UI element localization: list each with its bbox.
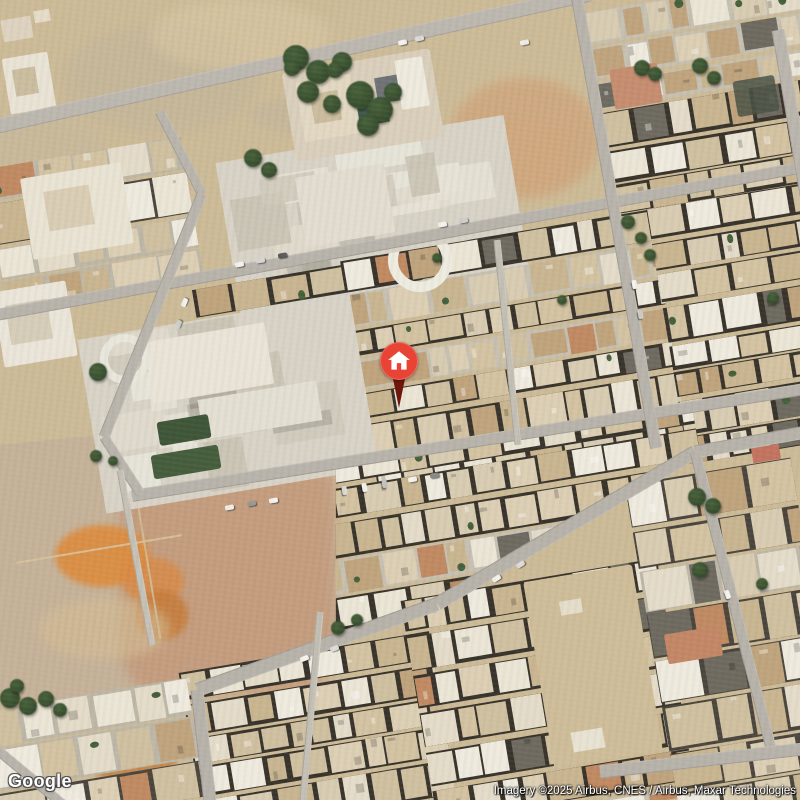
home-icon (386, 348, 412, 374)
google-logo[interactable]: Google (8, 771, 72, 792)
marker-head (380, 342, 418, 380)
map-viewport[interactable]: Google Imagery ©2025 Airbus, CNES / Airb… (0, 0, 800, 800)
map-attribution: Imagery ©2025 Airbus, CNES / Airbus, Max… (494, 785, 796, 797)
